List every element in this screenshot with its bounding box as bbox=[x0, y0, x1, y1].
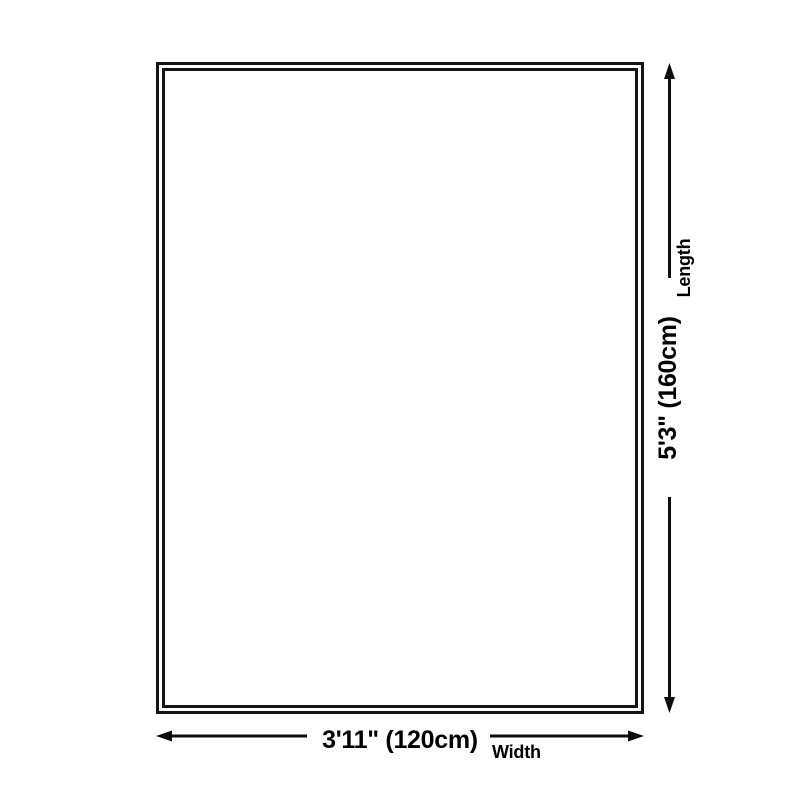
length-axis-label: Length bbox=[674, 228, 694, 308]
width-axis-label: Width bbox=[492, 742, 541, 762]
width-value: 3'11" (120cm) bbox=[290, 725, 510, 755]
product-outline-outer bbox=[156, 62, 644, 714]
arrow-down-icon bbox=[664, 697, 675, 713]
dimension-diagram: 5'3" (160cm) Length 3'11" (120cm) Width bbox=[0, 0, 800, 800]
product-outline-inner bbox=[162, 68, 638, 708]
arrow-right-icon bbox=[628, 731, 644, 742]
